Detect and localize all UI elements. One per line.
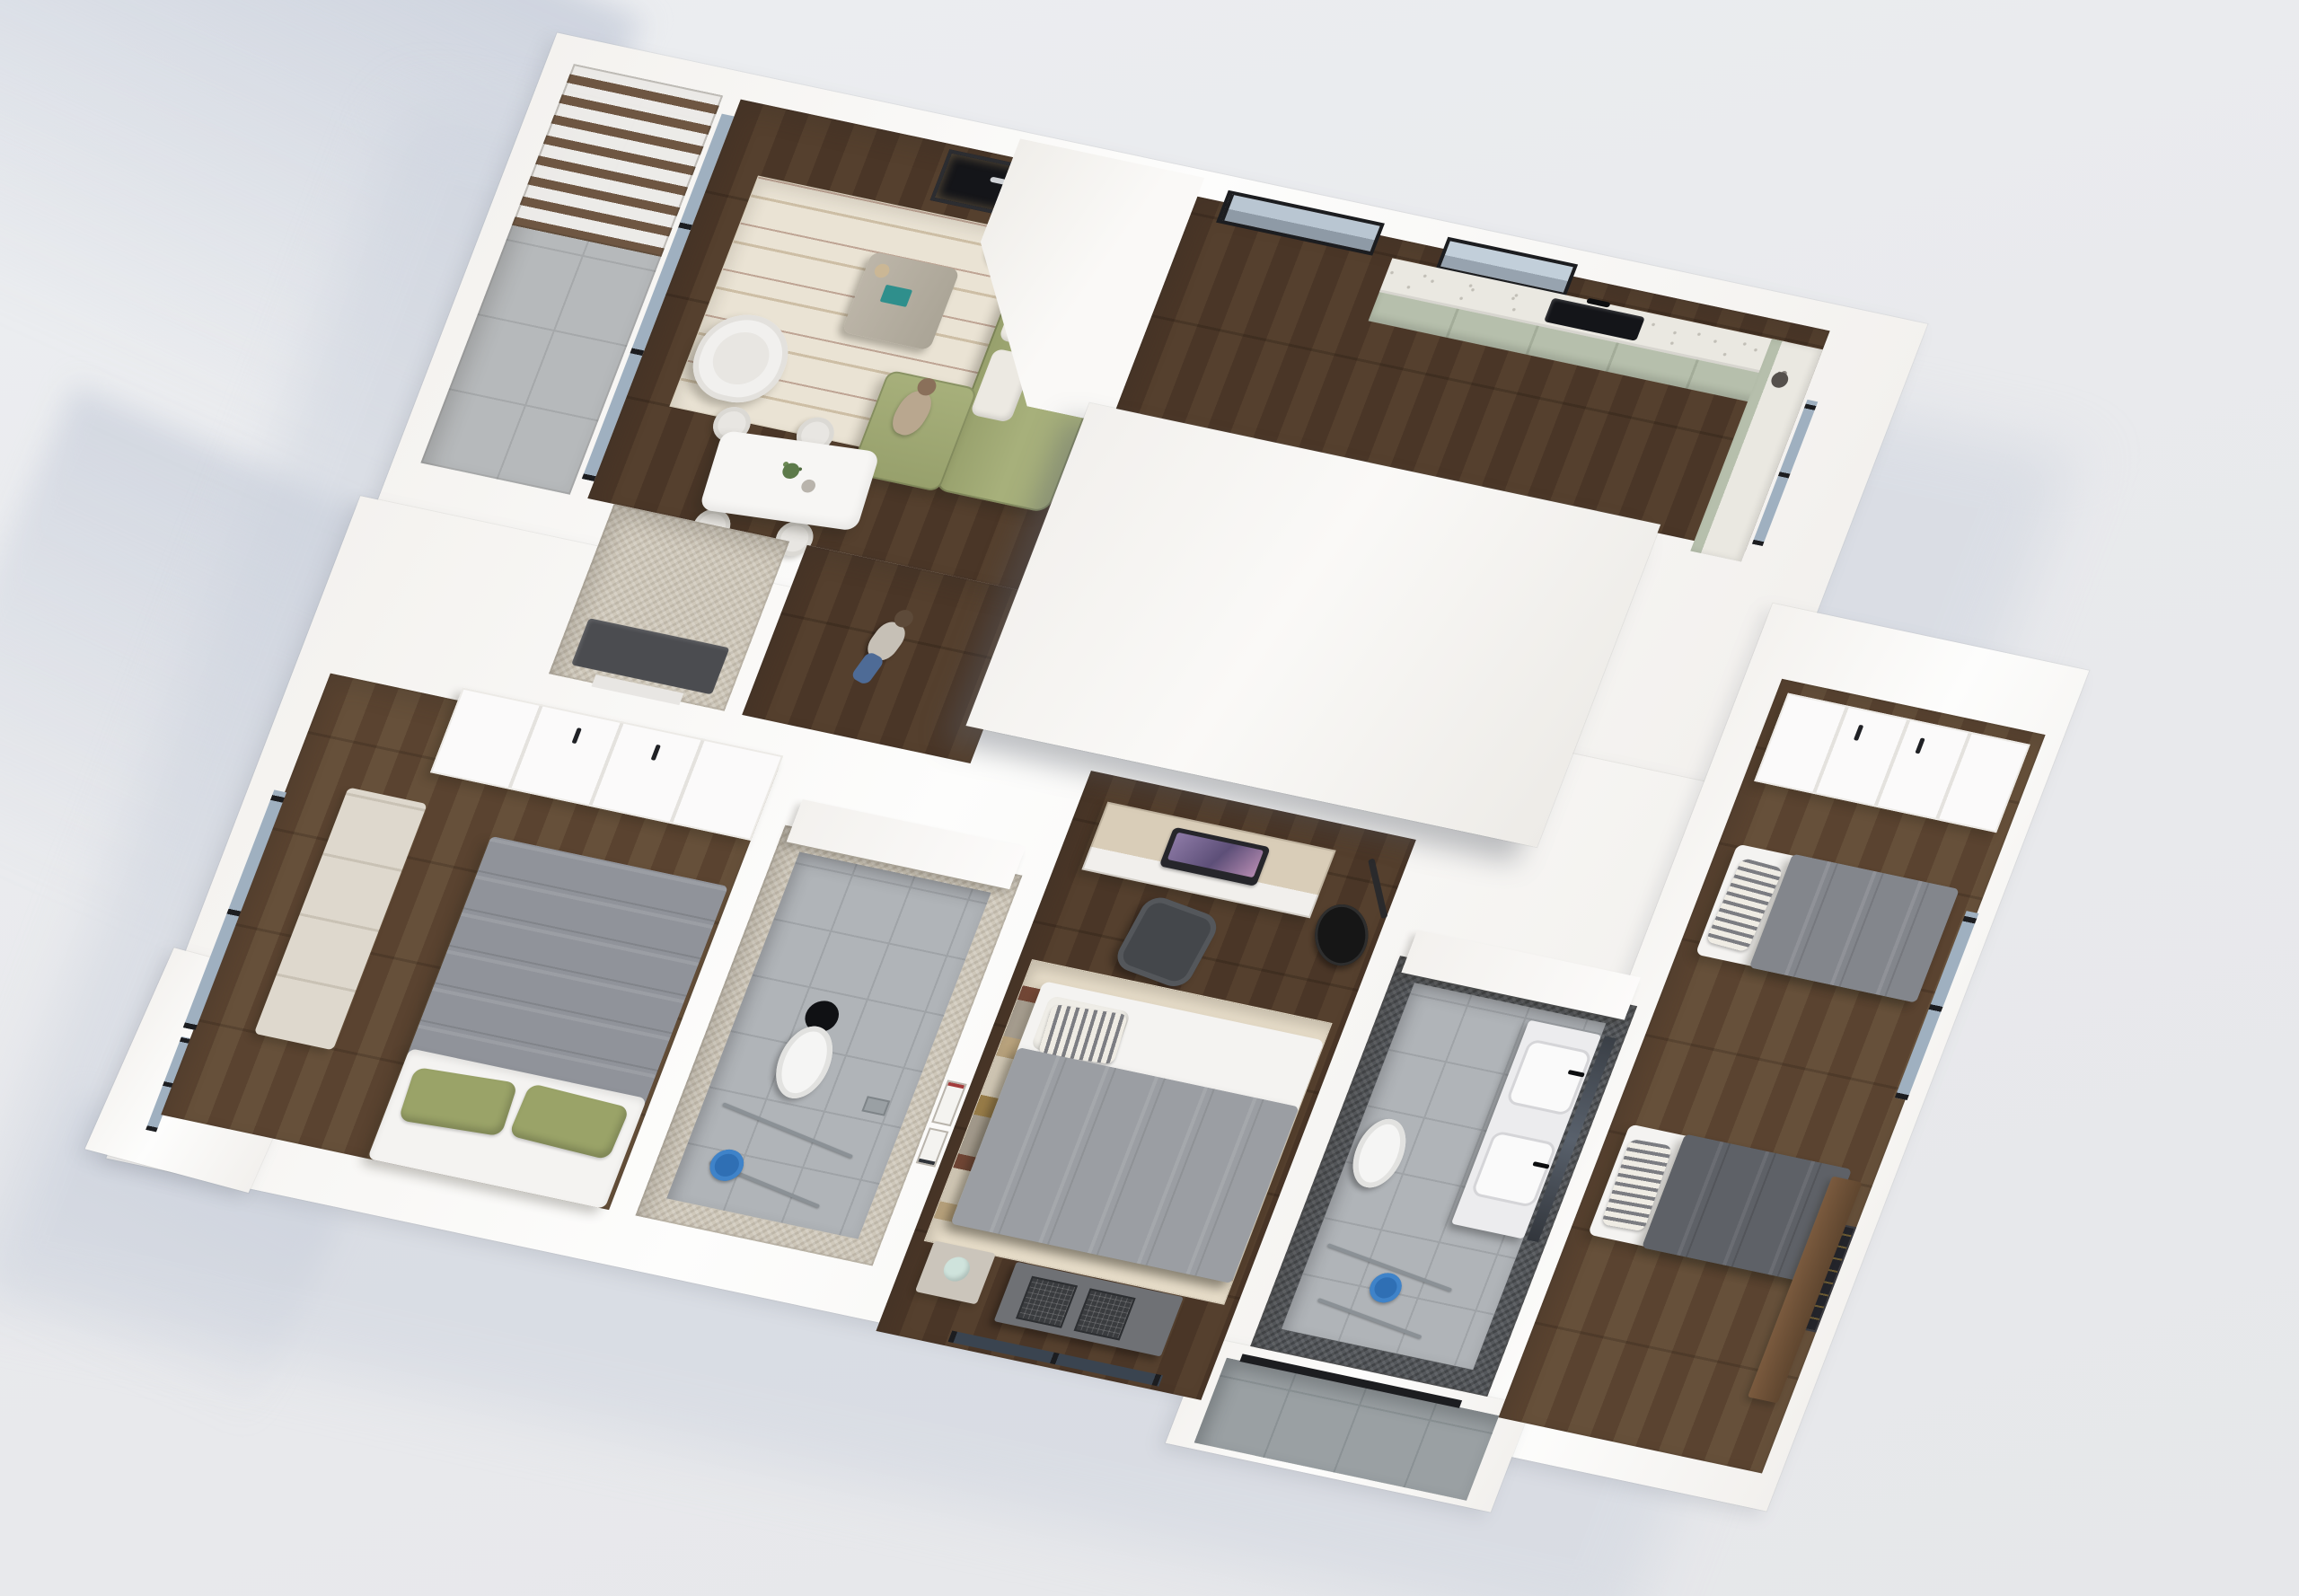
- render-stage: [0, 0, 2299, 1596]
